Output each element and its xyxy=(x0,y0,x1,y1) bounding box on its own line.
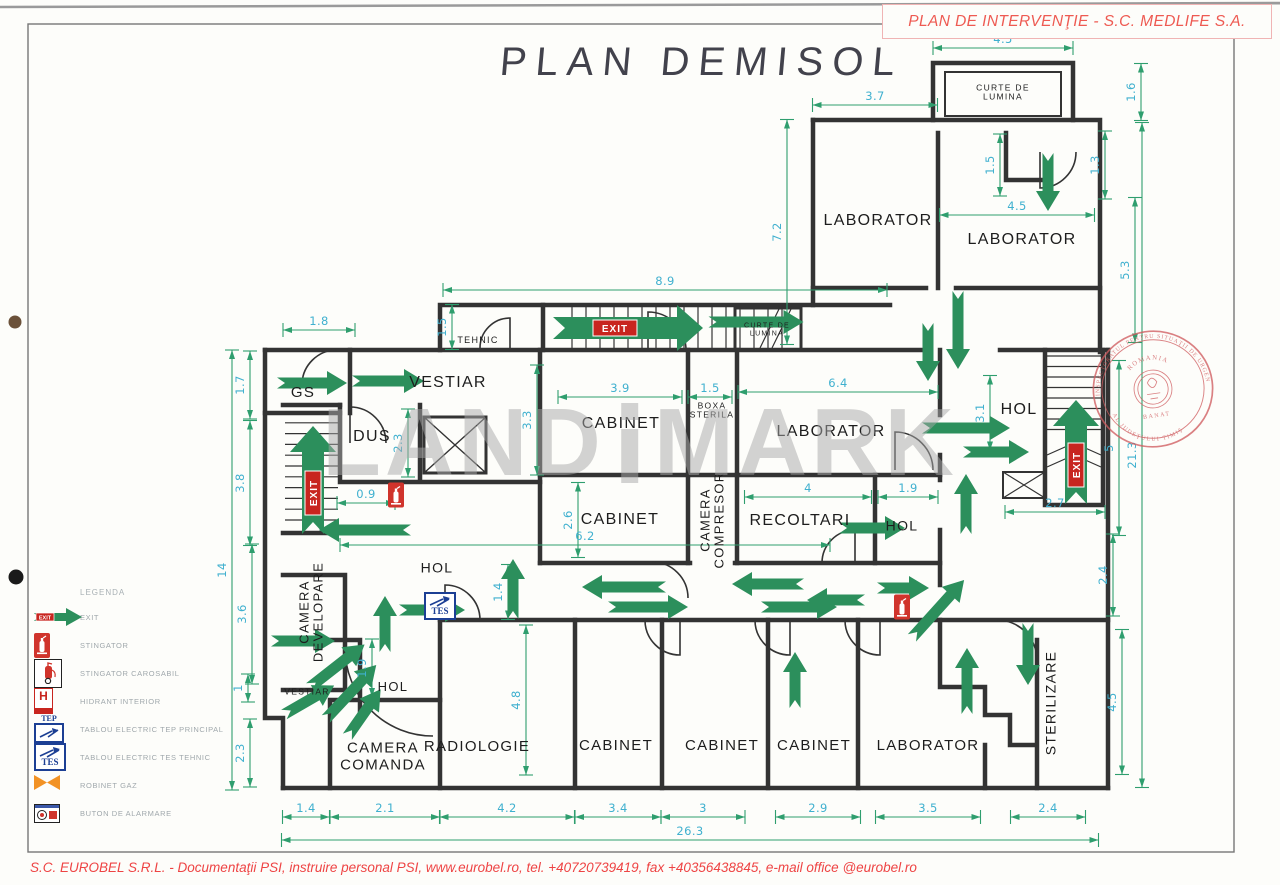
legend: LEGENDA EXITEXIT STINGATOR STINGATOR CAR… xyxy=(34,588,224,827)
stamp-romania-text: ROMANIA xyxy=(1125,352,1171,372)
legend-item-label: BUTON DE ALARMARE xyxy=(80,809,172,818)
legend-item: STINGATOR xyxy=(34,631,224,659)
legend-item: BUTON DE ALARMARE xyxy=(34,799,224,827)
room-label: VESTIAR xyxy=(409,374,487,392)
svg-text:ROMANIA: ROMANIA xyxy=(1125,352,1171,372)
dimension-label: 2.1 xyxy=(375,801,395,815)
room-label: CABINET xyxy=(579,738,653,755)
room-label: CAMERA COMPRESOR xyxy=(699,472,728,569)
extinguisher-cart-icon xyxy=(34,659,62,688)
room-label: DUS xyxy=(353,428,391,446)
page-title: PLAN DEMISOL xyxy=(498,40,906,85)
legend-item: TESTABLOU ELECTRIC TES TEHNIC xyxy=(34,743,224,771)
room-label: GS xyxy=(291,385,315,402)
room-label: HOL xyxy=(886,518,919,533)
svg-text:EXIT: EXIT xyxy=(39,615,52,621)
dimension-label: 1.3 xyxy=(1088,155,1102,175)
dimension-label: 7.2 xyxy=(770,222,784,242)
dimension-label: 1 xyxy=(231,684,245,692)
legend-item-label: TABLOU ELECTRIC TES TEHNIC xyxy=(80,753,211,762)
extinguisher-icon xyxy=(388,483,404,508)
dimension-label: 1.9 xyxy=(355,658,369,678)
room-label: TEHNIC xyxy=(457,336,498,346)
dimension-label: 2.6 xyxy=(561,510,575,530)
dimension-label: 2.3 xyxy=(233,743,247,763)
room-label: BOXA STERILA xyxy=(690,402,735,421)
dimension-label: 1.5 xyxy=(435,317,449,337)
legend-item-label: STINGATOR CAROSABIL xyxy=(80,669,179,678)
dimension-label: 5.3 xyxy=(1118,260,1132,280)
room-label: HOL xyxy=(378,680,409,694)
dimension-label: 3.3 xyxy=(520,410,534,430)
dimension-label: 4.5 xyxy=(1105,692,1119,712)
legend-item-label: EXIT xyxy=(80,613,99,622)
dimension-label: 14 xyxy=(215,562,229,577)
legend-item: TEP TABLOU ELECTRIC TEP PRINCIPAL xyxy=(34,715,224,743)
punch-hole-bottom xyxy=(9,570,24,585)
dimension-label: 2.3 xyxy=(391,433,405,453)
room-label: CABINET xyxy=(582,415,660,433)
dimension-label: 2.9 xyxy=(808,801,828,815)
room-label: HOL xyxy=(421,560,454,575)
dimension-label: 2.4 xyxy=(1096,565,1110,585)
tes-panel-icon: TES xyxy=(34,743,66,771)
intervention-plan-header: PLAN DE INTERVENŢIE - S.C. MEDLIFE S.A. xyxy=(882,4,1272,39)
dimension-label: 3.4 xyxy=(608,801,628,815)
room-label: CABINET xyxy=(777,738,851,755)
dimension-label: 4 xyxy=(804,481,812,495)
scanned-floor-plan-sheet: EXITEXITEXIT 8.93.74.54.51.80.96.23.91.5… xyxy=(0,0,1280,885)
alarm-button-icon xyxy=(34,804,60,823)
room-label: LABORATOR xyxy=(968,231,1077,249)
exit-arrow-icon: EXIT xyxy=(34,608,82,626)
room-label: CAMERA DEVELOPARE xyxy=(298,562,327,662)
room-label: CURTE DE LUMINA xyxy=(976,84,1030,103)
dimension-label: 4.2 xyxy=(497,801,517,815)
room-label: CABINET xyxy=(581,511,659,529)
dimension-label: 3.5 xyxy=(918,801,938,815)
dimension-label: 3.6 xyxy=(235,604,249,624)
dimension-label: 4.8 xyxy=(509,690,523,710)
legend-item-label: TABLOU ELECTRIC TEP PRINCIPAL xyxy=(80,725,224,734)
footer-company-line: S.C. EUROBEL S.R.L. - Documentaţii PSI, … xyxy=(30,860,917,875)
dimension-label: 1.9 xyxy=(898,481,918,495)
room-label: CAMERA COMANDA xyxy=(340,741,426,774)
stamp-banat-text: BANAT xyxy=(1143,411,1171,421)
room-label: STERILIZARE xyxy=(1043,651,1058,756)
dimension-label: 2.4 xyxy=(1038,801,1058,815)
room-label: HOL xyxy=(1001,401,1038,419)
room-label: LABORATOR xyxy=(824,212,933,230)
dimension-label: 4.5 xyxy=(1007,199,1027,213)
room-label: LABORATOR xyxy=(877,738,980,755)
dimension-label: 3.1 xyxy=(973,403,987,423)
dimension-label: 1.8 xyxy=(309,314,329,328)
tep-panel-icon: TEP xyxy=(34,715,64,743)
room-label: RADIOLOGIE xyxy=(424,739,530,756)
legend-heading: LEGENDA xyxy=(80,588,224,597)
dimension-label: 1.4 xyxy=(296,801,316,815)
punch-hole-top xyxy=(9,316,22,329)
dimension-label: 0.9 xyxy=(356,487,376,501)
dimension-label: 3 xyxy=(699,801,707,815)
legend-item-label: HIDRANT INTERIOR xyxy=(80,697,161,706)
extinguisher-icon xyxy=(894,595,910,620)
legend-item: STINGATOR CAROSABIL xyxy=(34,659,224,687)
legend-item: HHIDRANT INTERIOR xyxy=(34,687,224,715)
room-label: CABINET xyxy=(685,738,759,755)
dimension-label: 6.4 xyxy=(828,376,848,390)
dimension-label: 1.4 xyxy=(491,582,505,602)
dimension-label: 6.2 xyxy=(575,529,595,543)
room-label: LABORATOR xyxy=(777,423,886,441)
extinguisher-icon xyxy=(34,633,50,658)
dimension-label: 2.7 xyxy=(1045,496,1065,510)
dimension-label: 1.7 xyxy=(233,375,247,395)
header-label: PLAN DE INTERVENŢIE - S.C. MEDLIFE S.A. xyxy=(908,13,1245,31)
legend-item: EXITEXIT xyxy=(34,603,224,631)
svg-text:AL JUDEŢULUI TIMIŞ: AL JUDEŢULUI TIMIŞ xyxy=(1110,403,1185,448)
room-label: VESTIAR xyxy=(284,687,329,696)
dimension-label: 1.6 xyxy=(1124,82,1138,102)
dimension-label: 1.5 xyxy=(983,155,997,175)
tes-panel-icon: TES xyxy=(424,592,456,620)
legend-item-label: ROBINET GAZ xyxy=(80,781,137,790)
room-label: CURTE DE LUMINA xyxy=(744,322,790,337)
legend-item-label: STINGATOR xyxy=(80,641,128,650)
gas-valve-icon xyxy=(34,775,60,795)
dimension-label: 3.8 xyxy=(233,473,247,493)
dimension-label: 1.5 xyxy=(700,381,720,395)
hydrant-icon: H xyxy=(34,688,53,714)
stamp-arc-bottom-text: AL JUDEŢULUI TIMIŞ xyxy=(1110,403,1185,448)
dimension-label: 3.9 xyxy=(610,381,630,395)
dimension-label: 3.7 xyxy=(865,89,885,103)
legend-item: ROBINET GAZ xyxy=(34,771,224,799)
dimension-label: 26.3 xyxy=(676,824,703,838)
dimension-label: 8.9 xyxy=(655,274,675,288)
official-red-stamp: INSPECTORATUL PENTRU SITUAŢII DE URGENŢĂ… xyxy=(1073,309,1233,469)
room-label: RECOLTARI xyxy=(750,512,851,530)
